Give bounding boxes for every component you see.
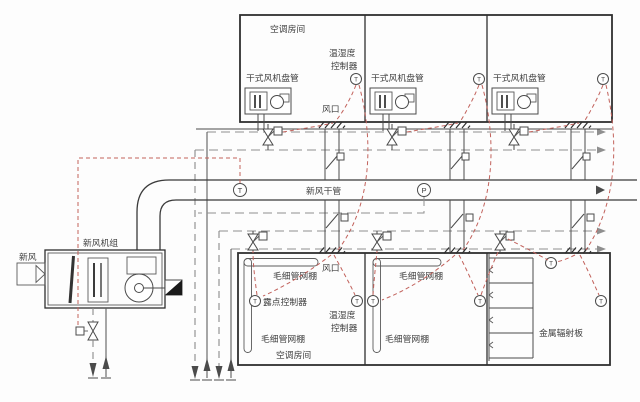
filter-icon bbox=[70, 256, 74, 303]
air-vent-label: 风口 bbox=[322, 104, 340, 114]
sensor-letter: T bbox=[371, 299, 375, 306]
valve-actuator bbox=[76, 327, 84, 335]
hvac-diagram: 新风干管 T P 空调房间 温湿度 控制器 风口 干式风机盘管 干式风机盘管 bbox=[0, 0, 640, 402]
sensor-letter: T bbox=[355, 299, 359, 306]
coil-section bbox=[88, 258, 108, 302]
pipe-arrow-icon bbox=[597, 129, 606, 136]
valve-roomC bbox=[495, 231, 514, 253]
fresh-air-intake bbox=[17, 263, 45, 285]
dew-point-controller-label: 露点控制器 bbox=[263, 296, 307, 307]
sensor-letter: T bbox=[477, 77, 481, 84]
lower-room-label: 空调房间 bbox=[276, 349, 311, 360]
pipe-arrow-icon bbox=[597, 228, 606, 235]
fan-coil-label: 干式风机盘管 bbox=[371, 72, 424, 83]
upper-control-valves bbox=[263, 124, 528, 150]
sensor-letter: T bbox=[549, 261, 553, 268]
capillary-mat bbox=[244, 259, 252, 353]
capillary-label: 毛细管网棚 bbox=[385, 333, 429, 344]
sensor-letter: T bbox=[599, 299, 603, 306]
return-arrow-icon bbox=[204, 358, 211, 371]
radiant-panel-label: 金属辐射板 bbox=[539, 327, 583, 338]
sensor-letter: T bbox=[478, 299, 482, 306]
capillary-label: 毛细管网棚 bbox=[261, 333, 305, 344]
thermo-humidity-controller-label: 温湿度 bbox=[329, 309, 356, 320]
valve-room3 bbox=[509, 124, 528, 150]
valve-room2 bbox=[387, 124, 406, 150]
lower-rooms: 毛细管网棚 毛细管网棚 毛细管网棚 毛细管网棚 露点控制器 温湿度 控制器 空调… bbox=[238, 200, 610, 365]
sensor-letter: T bbox=[253, 299, 257, 306]
supply-arrow-icon bbox=[216, 366, 223, 379]
sensor-letter: T bbox=[354, 77, 358, 84]
fresh-air-label: 新风 bbox=[19, 251, 37, 262]
hvac-schematic-canvas: 新风干管 T P 空调房间 温湿度 控制器 风口 干式风机盘管 干式风机盘管 bbox=[0, 0, 640, 402]
thermo-humidity-controller-label: 控制器 bbox=[331, 322, 358, 333]
valve-roomB bbox=[372, 231, 391, 253]
return-arrow-icon bbox=[228, 358, 235, 371]
pipe-arrow-icon bbox=[597, 246, 606, 253]
airflow-arrow-icon bbox=[596, 186, 605, 195]
upper-room-label: 空调房间 bbox=[270, 23, 305, 34]
capillary-label: 毛细管网棚 bbox=[399, 270, 443, 281]
fan-coil-label: 干式风机盘管 bbox=[493, 72, 546, 83]
sensor-letter: T bbox=[601, 77, 605, 84]
supply-arrow-icon bbox=[192, 366, 199, 379]
upper-branch-ducts bbox=[319, 122, 591, 180]
ahu-water-valve bbox=[76, 308, 111, 378]
duct-temperature-sensor-letter: T bbox=[238, 186, 243, 195]
capillary-mat bbox=[373, 259, 441, 267]
pipe-arrow-icon bbox=[597, 147, 606, 154]
thermo-humidity-controller-label: 控制器 bbox=[331, 60, 358, 71]
fresh-air-unit: 新风机组 新风 bbox=[17, 237, 182, 378]
intake-damper-icon bbox=[36, 266, 45, 283]
valve-room1 bbox=[263, 124, 282, 150]
valve-roomA bbox=[248, 231, 267, 253]
lower-control-valves bbox=[248, 231, 514, 253]
fresh-air-unit-label: 新风机组 bbox=[83, 237, 118, 248]
metal-radiant-panel bbox=[489, 253, 533, 361]
thermo-humidity-controller-label: 温湿度 bbox=[329, 47, 356, 58]
duct-pressure-sensor-letter: P bbox=[421, 186, 426, 195]
capillary-mat bbox=[244, 259, 318, 267]
air-vent-label: 风口 bbox=[322, 263, 340, 273]
main-duct-label: 新风干管 bbox=[306, 185, 341, 196]
fan-coil-label: 干式风机盘管 bbox=[246, 72, 299, 83]
